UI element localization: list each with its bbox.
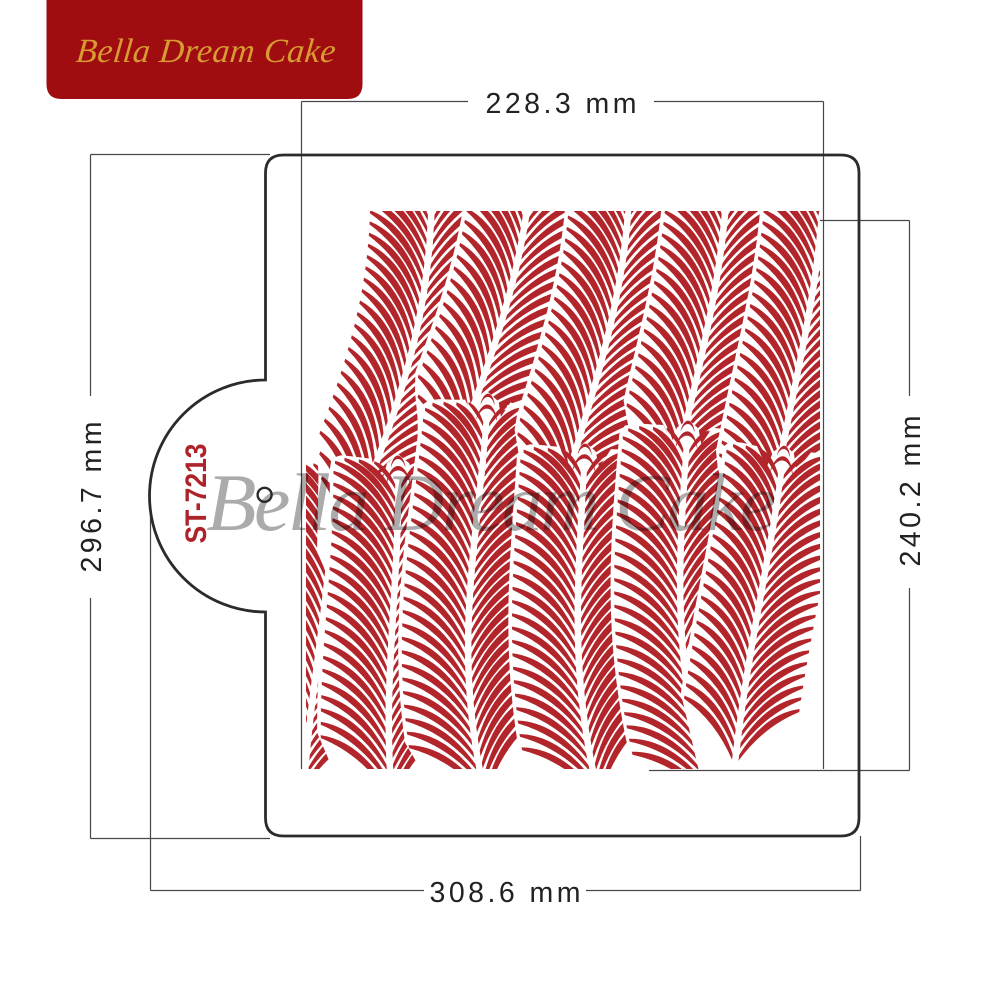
svg-text:228.3 mm: 228.3 mm (486, 88, 637, 120)
svg-text:296.7 mm: 296.7 mm (76, 422, 108, 573)
svg-text:308.6 mm: 308.6 mm (430, 877, 581, 909)
svg-text:Bella Dream Cake: Bella Dream Cake (74, 33, 338, 70)
svg-text:Bella Dream Cake: Bella Dream Cake (206, 457, 774, 548)
svg-text:240.2 mm: 240.2 mm (895, 416, 927, 567)
svg-text:ST-7213: ST-7213 (180, 444, 213, 544)
